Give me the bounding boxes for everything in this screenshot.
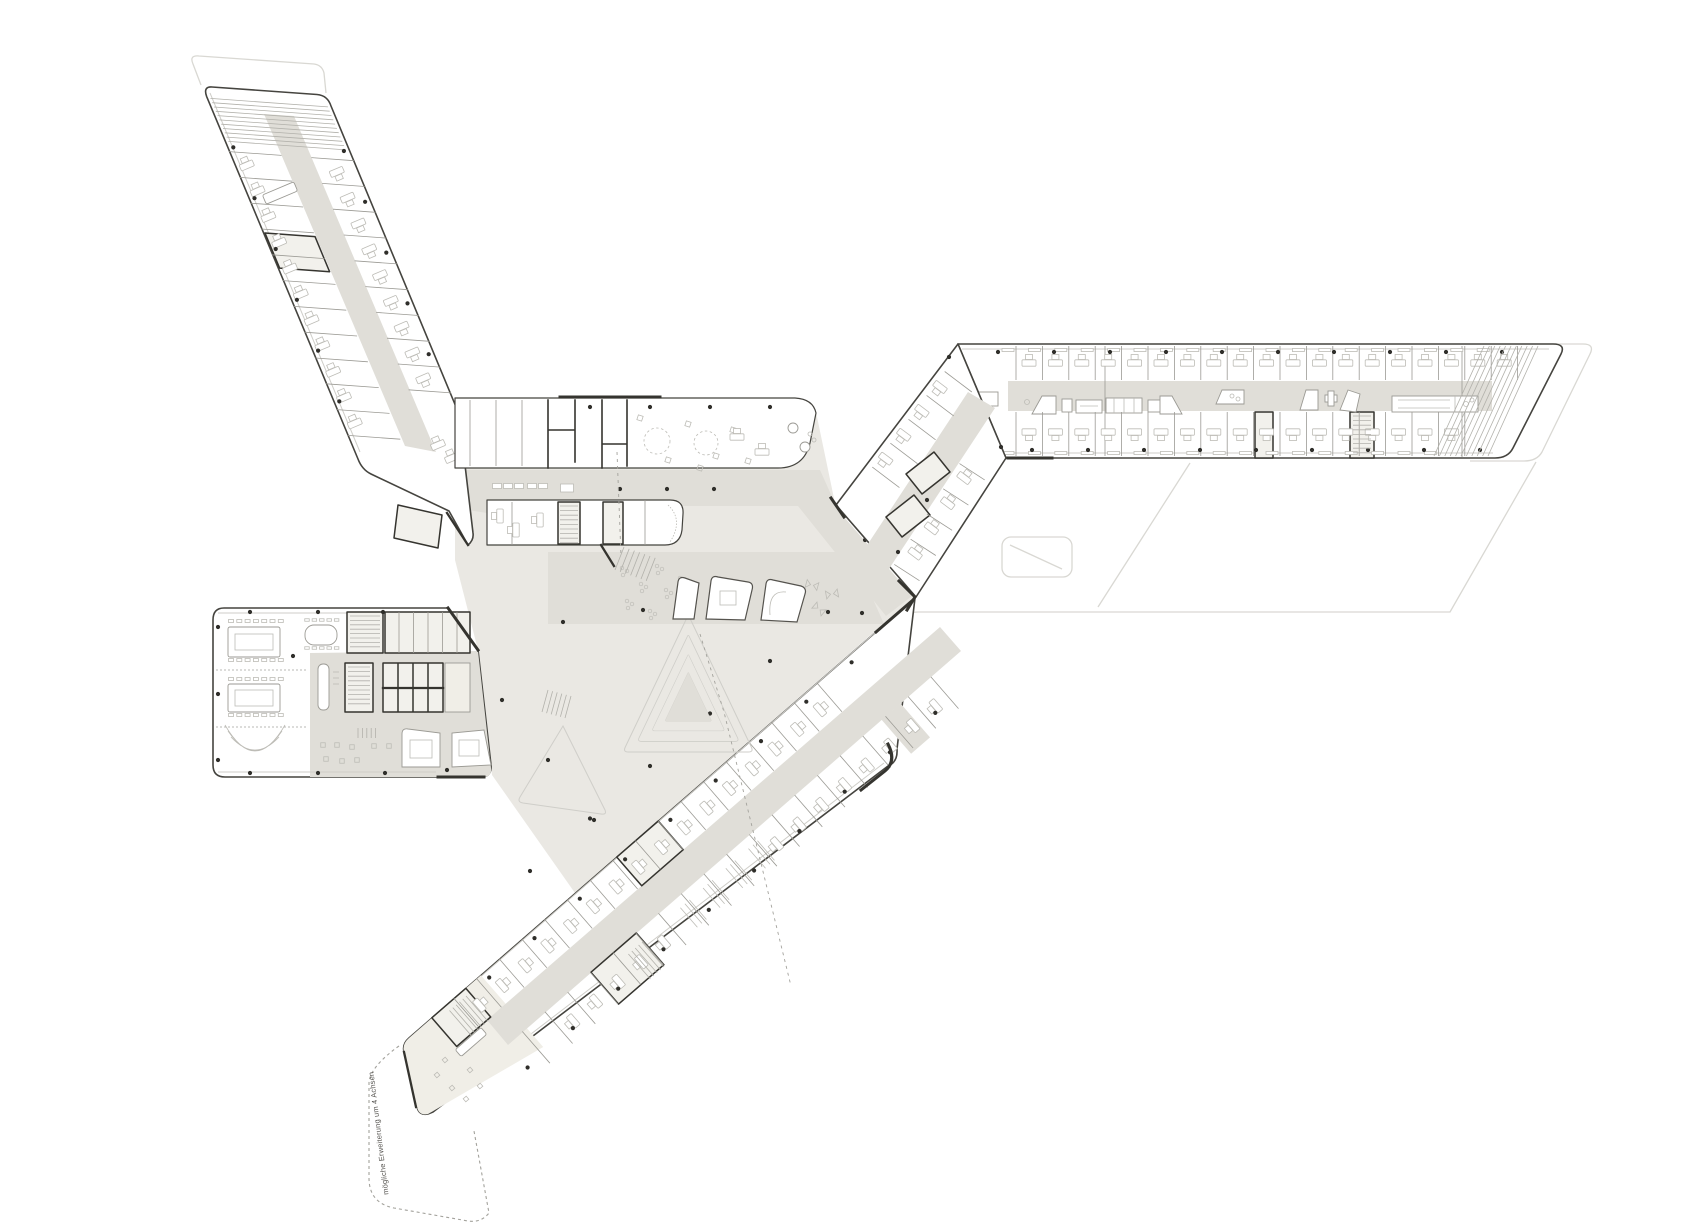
extension-annotation: mögliche Erweiterung um 4 Achsen bbox=[366, 1071, 390, 1195]
extension-ghost-southeast bbox=[895, 462, 1536, 627]
extension-ghost-fold-line bbox=[1098, 463, 1190, 607]
wing-east bbox=[939, 344, 1563, 458]
meeting-pods bbox=[673, 577, 806, 623]
wing-northwest bbox=[206, 87, 474, 548]
hall-north-room-band bbox=[455, 398, 816, 471]
skylight-icon bbox=[1002, 537, 1072, 577]
conference-block bbox=[213, 608, 491, 777]
floor-plan-page: mögliche Erweiterung um 4 Achsen bbox=[0, 0, 1700, 1229]
floor-plan-canvas: mögliche Erweiterung um 4 Achsen bbox=[0, 0, 1700, 1229]
